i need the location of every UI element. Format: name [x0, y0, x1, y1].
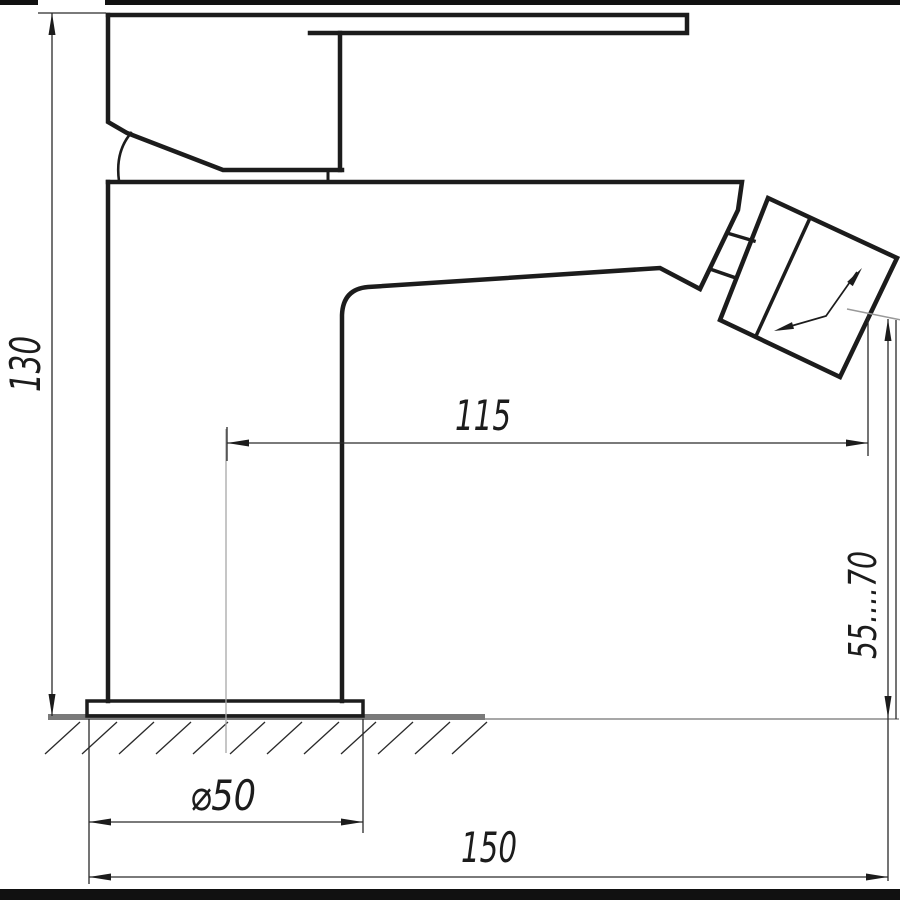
ground-hatching [45, 722, 487, 754]
construction-lines [226, 309, 900, 753]
body-and-spout [108, 182, 742, 701]
swivel-arrowhead-left-icon [774, 322, 794, 331]
arrow-right-icon [866, 874, 888, 881]
bottom-border [0, 889, 900, 900]
arrow-up-icon [885, 319, 892, 341]
dimension-150: 150 [89, 823, 888, 881]
arrow-right-icon [846, 440, 868, 447]
top-border-left [0, 0, 38, 5]
top-border-right [105, 0, 900, 5]
arrow-right-icon [341, 819, 363, 826]
swivel-arrowhead-up-icon [847, 268, 862, 286]
faucet-outline [87, 15, 897, 716]
faucet-dimension-drawing: 130 115 55....70 ⌀50 150 [0, 0, 900, 900]
dimension-115: 115 [227, 314, 868, 461]
dim-150-label: 150 [461, 823, 517, 872]
dim-5570-label: 55....70 [841, 551, 885, 659]
arrow-down-icon [49, 694, 56, 716]
dim-115-label: 115 [455, 391, 511, 440]
arrow-left-icon [89, 874, 111, 881]
aerator-cap-divider [756, 218, 810, 336]
handle-pivot-arc [118, 133, 131, 181]
dimension-130: 130 [1, 13, 106, 716]
base-flange [87, 701, 363, 716]
dim-130-label: 130 [1, 336, 50, 392]
arrow-up-icon [49, 13, 56, 35]
technical-drawing-canvas: 130 115 55....70 ⌀50 150 [0, 0, 900, 900]
arrow-left-icon [227, 440, 249, 447]
arrow-down-icon [885, 696, 892, 718]
mounting-surface [45, 717, 899, 754]
swivel-direction-arrow [774, 268, 862, 331]
handle-base [108, 15, 342, 170]
arrow-left-icon [89, 819, 111, 826]
lever-handle-bar [108, 15, 687, 33]
swivel-arrow-line [779, 272, 857, 330]
dim-d50-label: ⌀50 [190, 771, 256, 820]
